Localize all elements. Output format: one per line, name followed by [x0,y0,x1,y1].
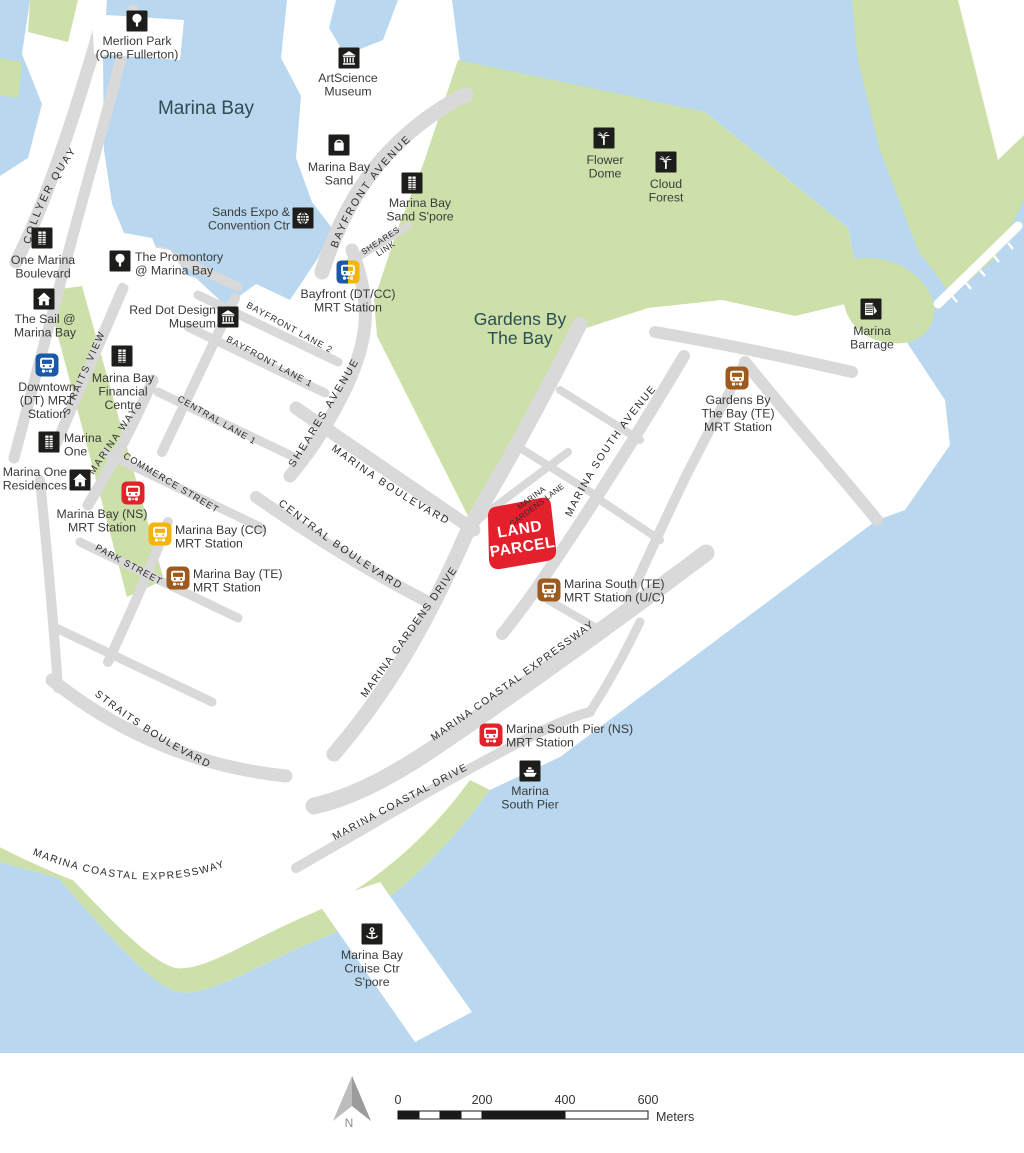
building-icon [402,173,423,194]
train-icon [167,567,190,590]
scale-tick-600: 600 [638,1093,659,1107]
building-icon [39,432,60,453]
the-promontory-label: The Promontory@ Marina Bay [135,250,224,278]
sands-expo-convention-ctr-label: Sands Expo &Convention Ctr [208,205,291,233]
scale-seg-4 [461,1111,482,1119]
cloud-forest-label: CloudForest [649,177,684,205]
tree-icon [110,251,131,272]
train-icon [36,354,59,377]
marina-south-te-mrt-station-label: Marina South (TE)MRT Station (U/C) [564,577,665,605]
train-icon [122,482,145,505]
train-icon [726,367,749,390]
artscience-museum-label: ArtScienceMuseum [318,71,378,99]
map-canvas: Marina BayGardens ByThe BayCOLLYER QUAYB… [0,0,1024,1153]
marina-south-te-mrt-station: Marina South (TE)MRT Station (U/C) [538,577,665,605]
scale-tick-200: 200 [472,1093,493,1107]
bayfront-mrt-station-label: Bayfront (DT/CC)MRT Station [301,287,396,315]
train-icon [337,261,360,284]
home-icon [70,470,91,491]
anchor-icon [362,924,383,945]
scale-unit: Meters [656,1110,694,1124]
marina-bay-sand-spore-label: Marina BaySand S'pore [386,196,453,224]
train-icon [480,724,503,747]
palm-icon [594,128,615,149]
scale-seg-1 [398,1111,419,1119]
building-icon [112,346,133,367]
marina-barrage-label: MarinaBarrage [850,324,894,352]
ferry-icon [520,761,541,782]
scale-seg-6 [565,1111,648,1119]
merlion-park-label: Merlion Park(One Fullerton) [96,34,179,62]
flower-dome-label: FlowerDome [587,153,624,181]
tree-icon [127,11,148,32]
museum-icon [218,307,239,328]
footer-strip [0,1053,1024,1153]
bag-icon [329,135,350,156]
gardens-by-the-bay-te-mrt-station-label: Gardens ByThe Bay (TE)MRT Station [701,393,774,434]
scale-seg-5 [482,1111,565,1119]
globe-icon [293,208,314,229]
scale-seg-2 [419,1111,440,1119]
barrage-icon [861,299,882,320]
marina-bay-ns-mrt-station-label: Marina Bay (NS)MRT Station [57,507,148,535]
marina-bay-water-label: Marina Bay [158,98,255,119]
scale-tick-0: 0 [395,1093,402,1107]
train-icon [538,579,561,602]
building-icon [32,228,53,249]
scale-tick-400: 400 [555,1093,576,1107]
marina-one-residences-label: Marina OneResidences [3,465,67,493]
sands-expo-convention-ctr: Sands Expo &Convention Ctr [208,205,314,233]
marina-bay-map: Marina BayGardens ByThe BayCOLLYER QUAYB… [0,0,1024,1153]
gardens-by-the-bay-label: Gardens ByThe Bay [474,309,567,348]
scale-seg-3 [440,1111,461,1119]
museum-icon [339,48,360,69]
the-sail-marina-bay-label: The Sail @Marina Bay [14,312,77,340]
home-icon [34,289,55,310]
north-label: N [345,1116,354,1130]
one-marina-boulevard-label: One MarinaBoulevard [11,253,75,281]
scale-bar [398,1111,648,1119]
train-icon [149,523,172,546]
palm-icon [656,152,677,173]
